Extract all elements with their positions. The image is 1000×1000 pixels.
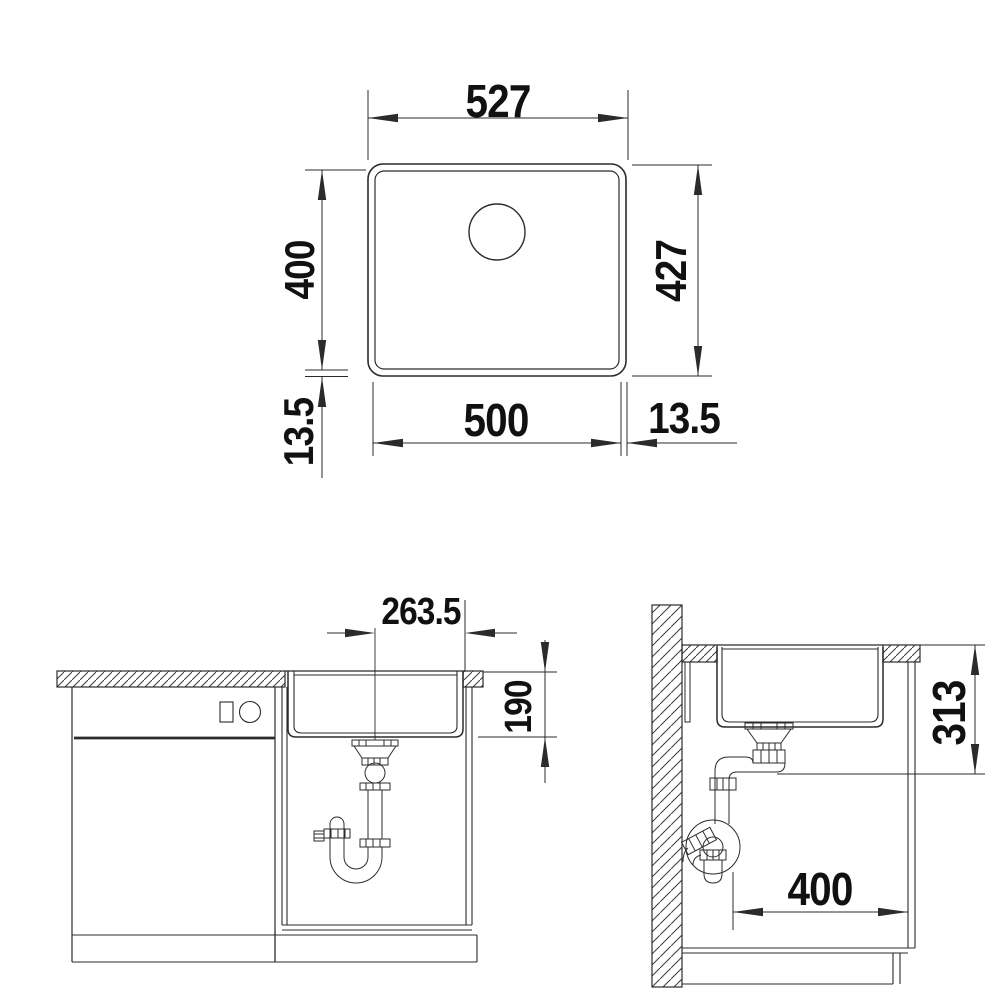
dim-label-plan-inner-width: 500 [464,397,529,443]
drain-hole [469,204,525,260]
side-view [652,605,985,987]
side-drain-trap [682,723,793,883]
front-countertop [57,671,483,687]
plan-sink-outline [368,164,626,376]
dim-label-front-center-to-edge: 263.5 [381,593,460,631]
front-base-plinth [72,930,477,962]
dim-label-side-top-to-outlet: 313 [926,681,972,746]
dim-label-plan-rim-right: 13.5 [648,397,720,441]
drawing-linework [0,0,1000,1000]
dim-label-front-bowl-depth: 190 [500,680,538,733]
front-cabinet-left [72,687,275,962]
control-knob [240,702,261,723]
dim-label-plan-outer-height: 427 [650,240,694,302]
dim-label-plan-outer-width: 527 [466,78,531,124]
dim-label-side-outlet-to-front: 400 [788,866,853,912]
control-rect [220,702,233,722]
front-view [57,600,557,962]
back-panel [685,662,690,722]
dim-label-plan-inner-height: 400 [279,240,321,299]
dim-label-plan-rim-left: 13.5 [278,398,320,466]
technical-drawing-canvas: 527 400 13.5 427 500 13.5 263.5 190 313 … [0,0,1000,1000]
front-sink-basin [288,671,463,737]
front-cabinet-right [282,687,472,930]
front-drain-trap [314,740,398,883]
side-sink-basin [717,647,883,727]
wall-section [652,605,682,987]
